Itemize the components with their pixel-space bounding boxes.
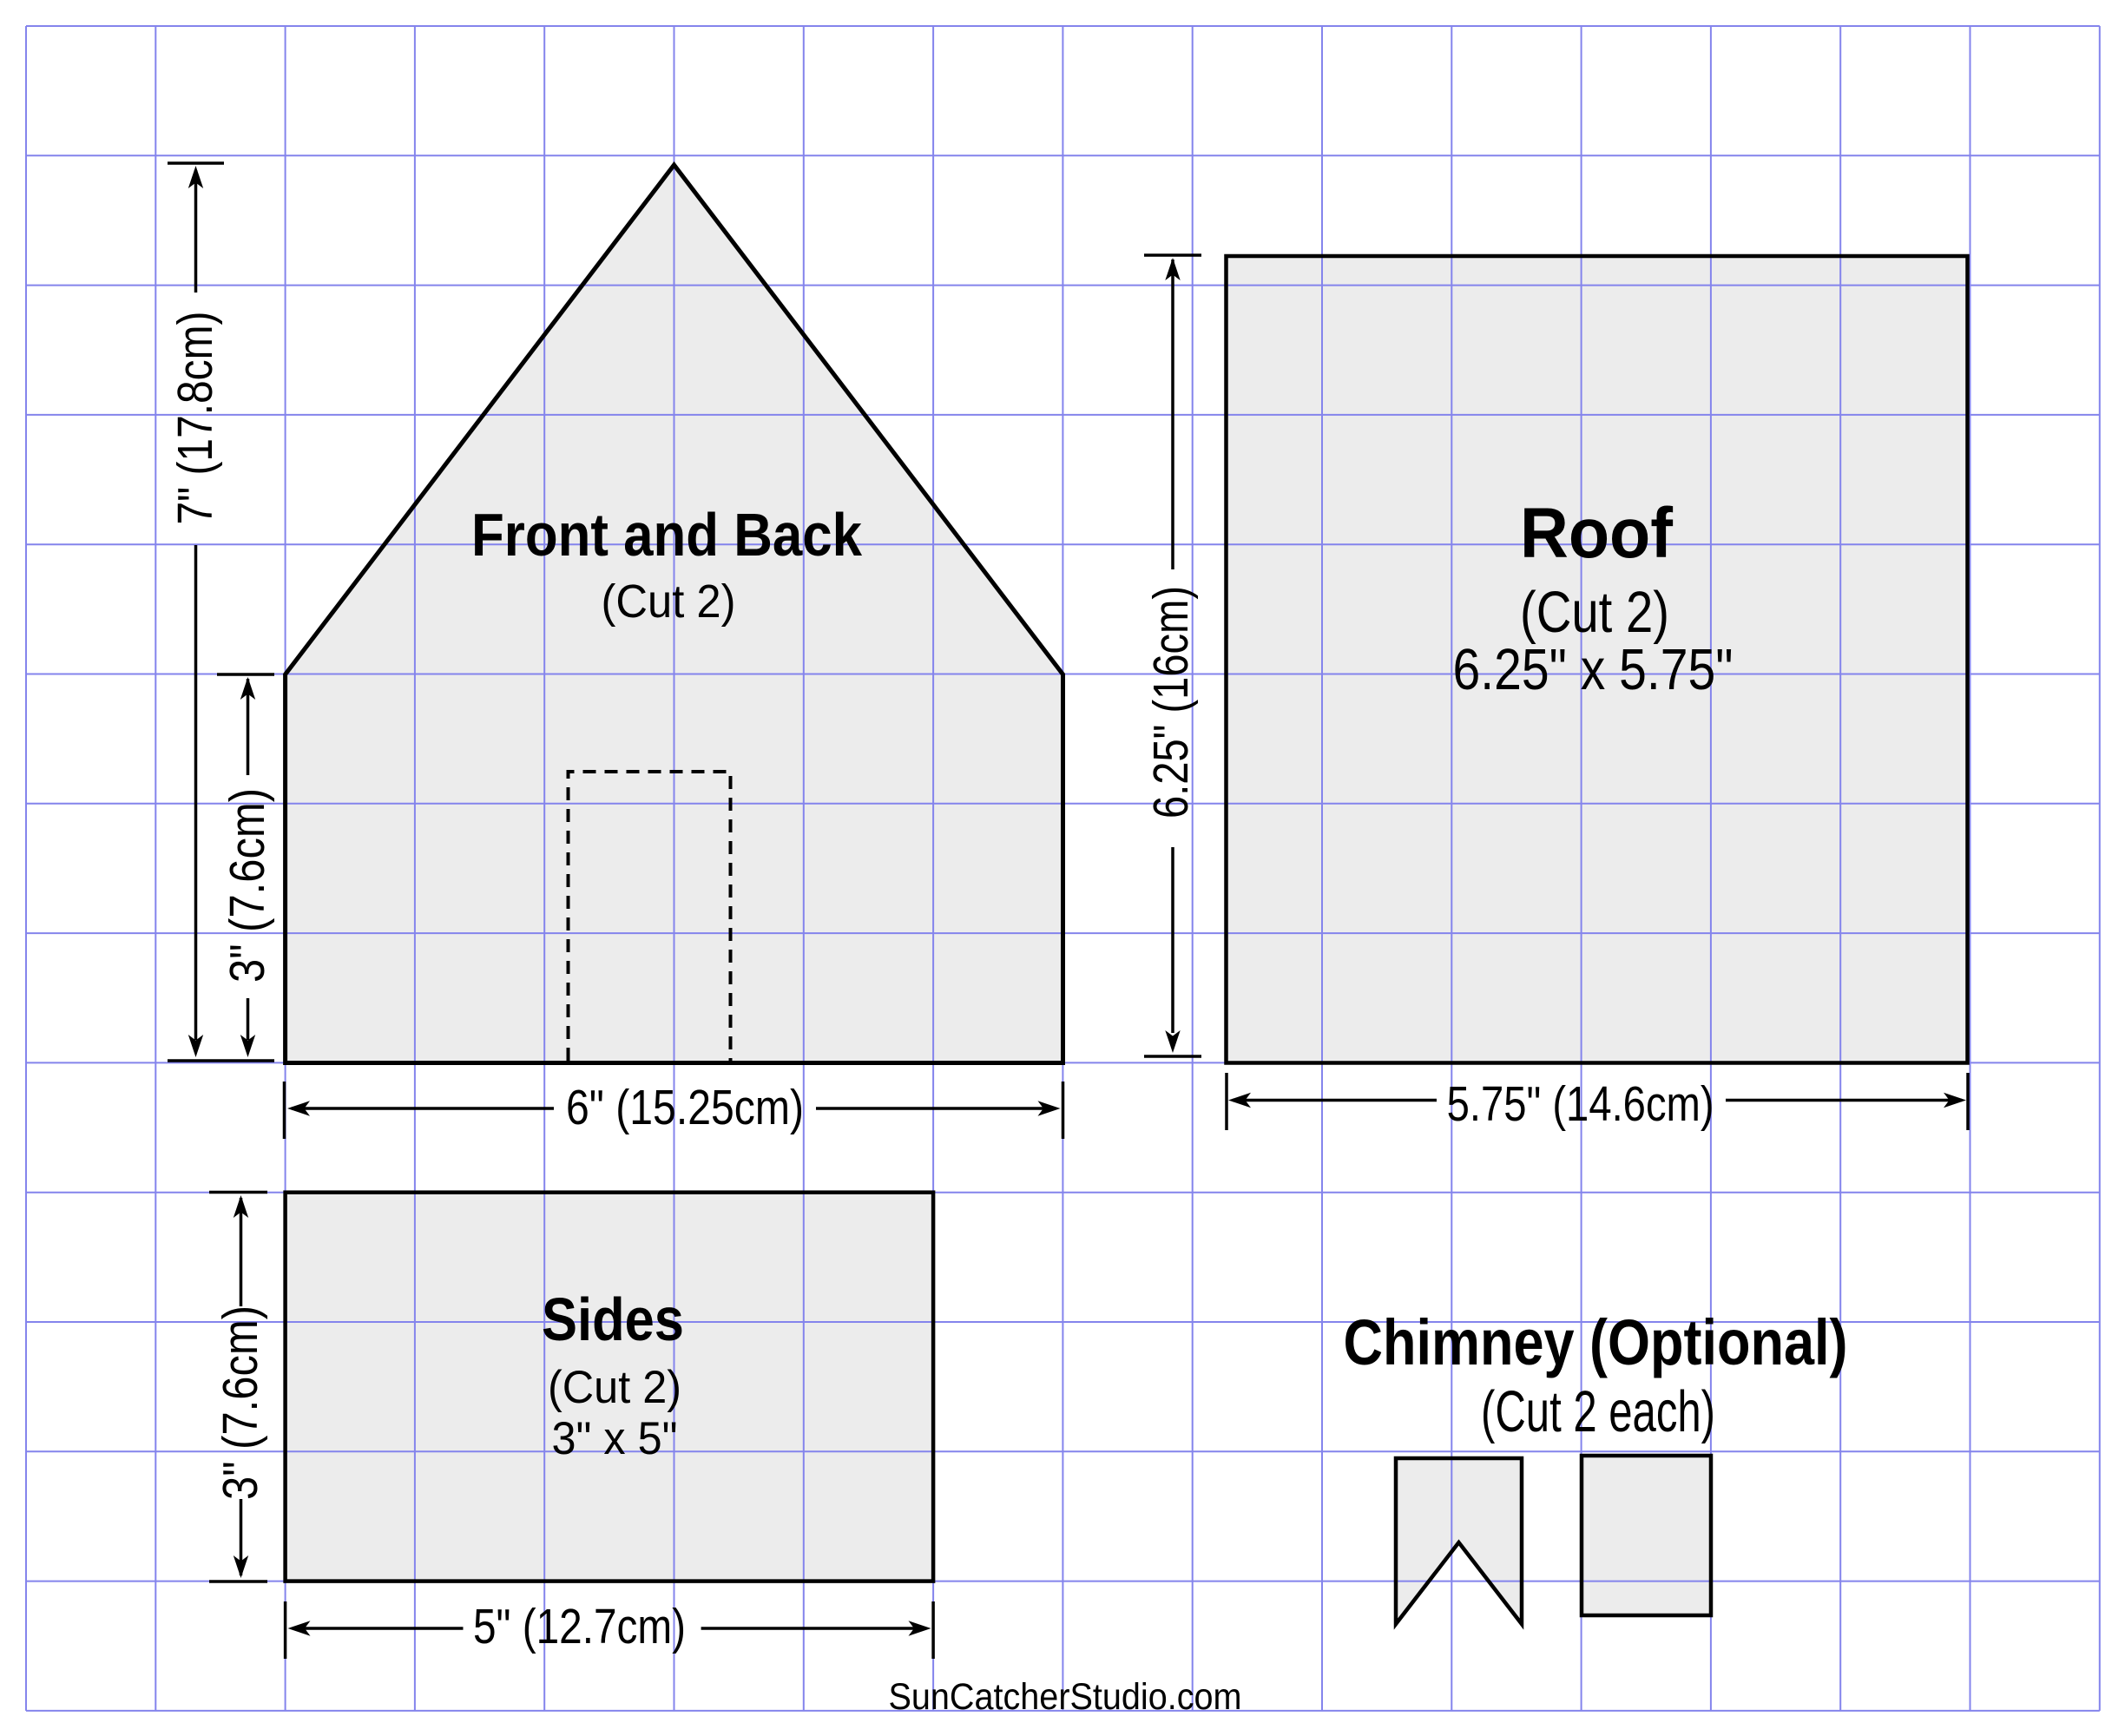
svg-text:5" (12.7cm): 5" (12.7cm) xyxy=(473,1599,686,1654)
svg-text:(Cut 2): (Cut 2) xyxy=(1520,580,1669,645)
svg-text:3" (7.6cm): 3" (7.6cm) xyxy=(220,788,275,983)
svg-text:3" x 5": 3" x 5" xyxy=(552,1413,678,1464)
svg-text:6.25" x 5.75": 6.25" x 5.75" xyxy=(1453,637,1734,702)
svg-text:(Cut 2 each): (Cut 2 each) xyxy=(1481,1379,1715,1444)
svg-text:7" (17.8cm): 7" (17.8cm) xyxy=(168,312,223,525)
svg-text:5.75" (14.6cm): 5.75" (14.6cm) xyxy=(1447,1076,1714,1132)
svg-text:(Cut 2): (Cut 2) xyxy=(548,1362,681,1413)
svg-text:6.25" (16cm): 6.25" (16cm) xyxy=(1143,586,1199,819)
svg-text:Chimney (Optional): Chimney (Optional) xyxy=(1344,1306,1848,1378)
svg-text:(Cut 2): (Cut 2) xyxy=(602,575,736,628)
svg-text:Front and Back: Front and Back xyxy=(471,501,862,569)
svg-text:Sides: Sides xyxy=(542,1286,684,1353)
svg-text:6" (15.25cm): 6" (15.25cm) xyxy=(566,1080,804,1135)
svg-text:3" (7.6cm): 3" (7.6cm) xyxy=(213,1305,268,1500)
svg-text:SunCatcherStudio.com: SunCatcherStudio.com xyxy=(889,1676,1242,1718)
svg-text:Roof: Roof xyxy=(1520,494,1674,573)
